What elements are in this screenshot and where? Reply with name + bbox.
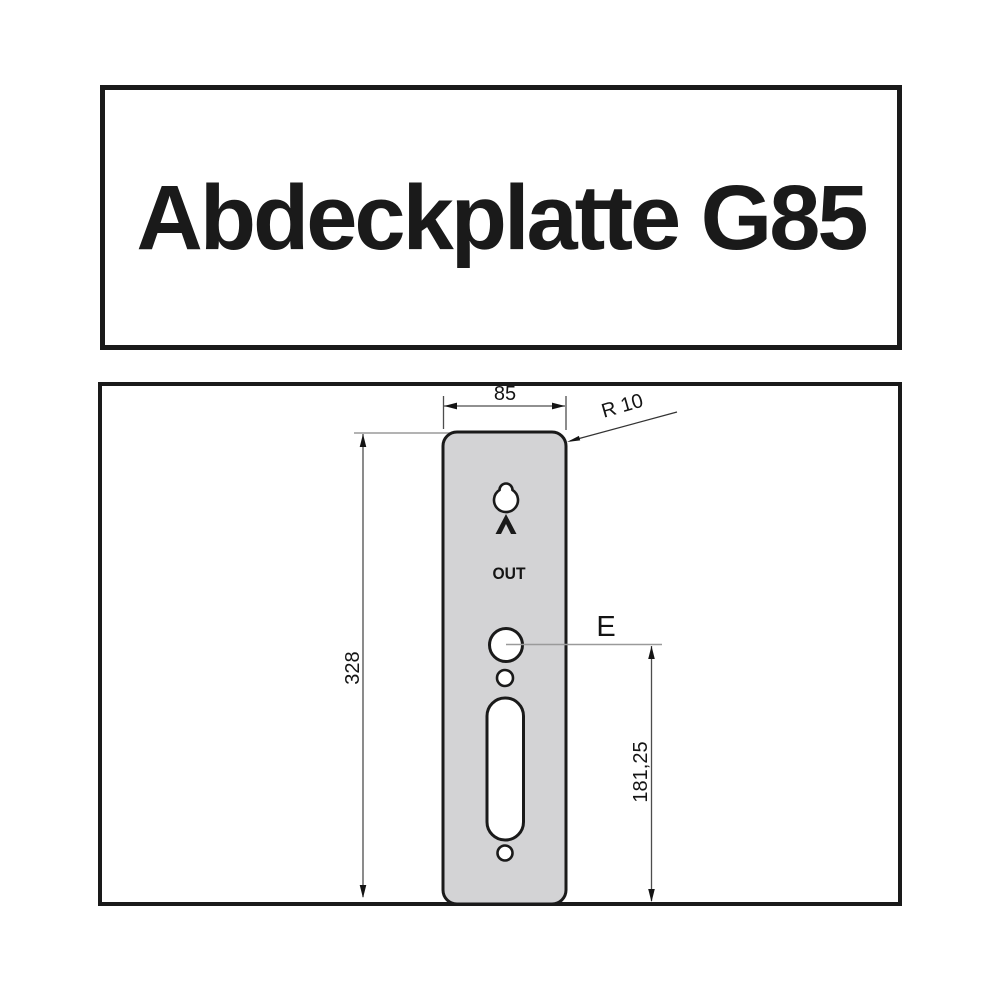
- width-dimension-label: 85: [494, 383, 516, 405]
- hole-distance-dimension-label: 181,25: [630, 741, 652, 802]
- out-marking: OUT: [493, 564, 527, 583]
- pilot-hole-lower: [498, 846, 513, 861]
- height-arrow-bottom-icon: [360, 885, 367, 898]
- slot-cutout: [487, 698, 524, 840]
- technical-drawing-canvas: OUT 85 R 10 328 E 181,25: [0, 0, 1000, 1000]
- pilot-hole-upper: [497, 670, 513, 686]
- height-dimension-label: 328: [342, 651, 364, 684]
- width-arrow-left-icon: [444, 403, 457, 410]
- width-arrow-right-icon: [552, 403, 565, 410]
- hole-distance-arrow-top-icon: [648, 646, 655, 659]
- hole-distance-arrow-bottom-icon: [648, 889, 655, 902]
- radius-arrow-icon: [567, 436, 580, 442]
- radius-dimension-label: R 10: [599, 390, 646, 423]
- hole-e-label: E: [596, 611, 615, 643]
- height-arrow-top-icon: [360, 434, 367, 447]
